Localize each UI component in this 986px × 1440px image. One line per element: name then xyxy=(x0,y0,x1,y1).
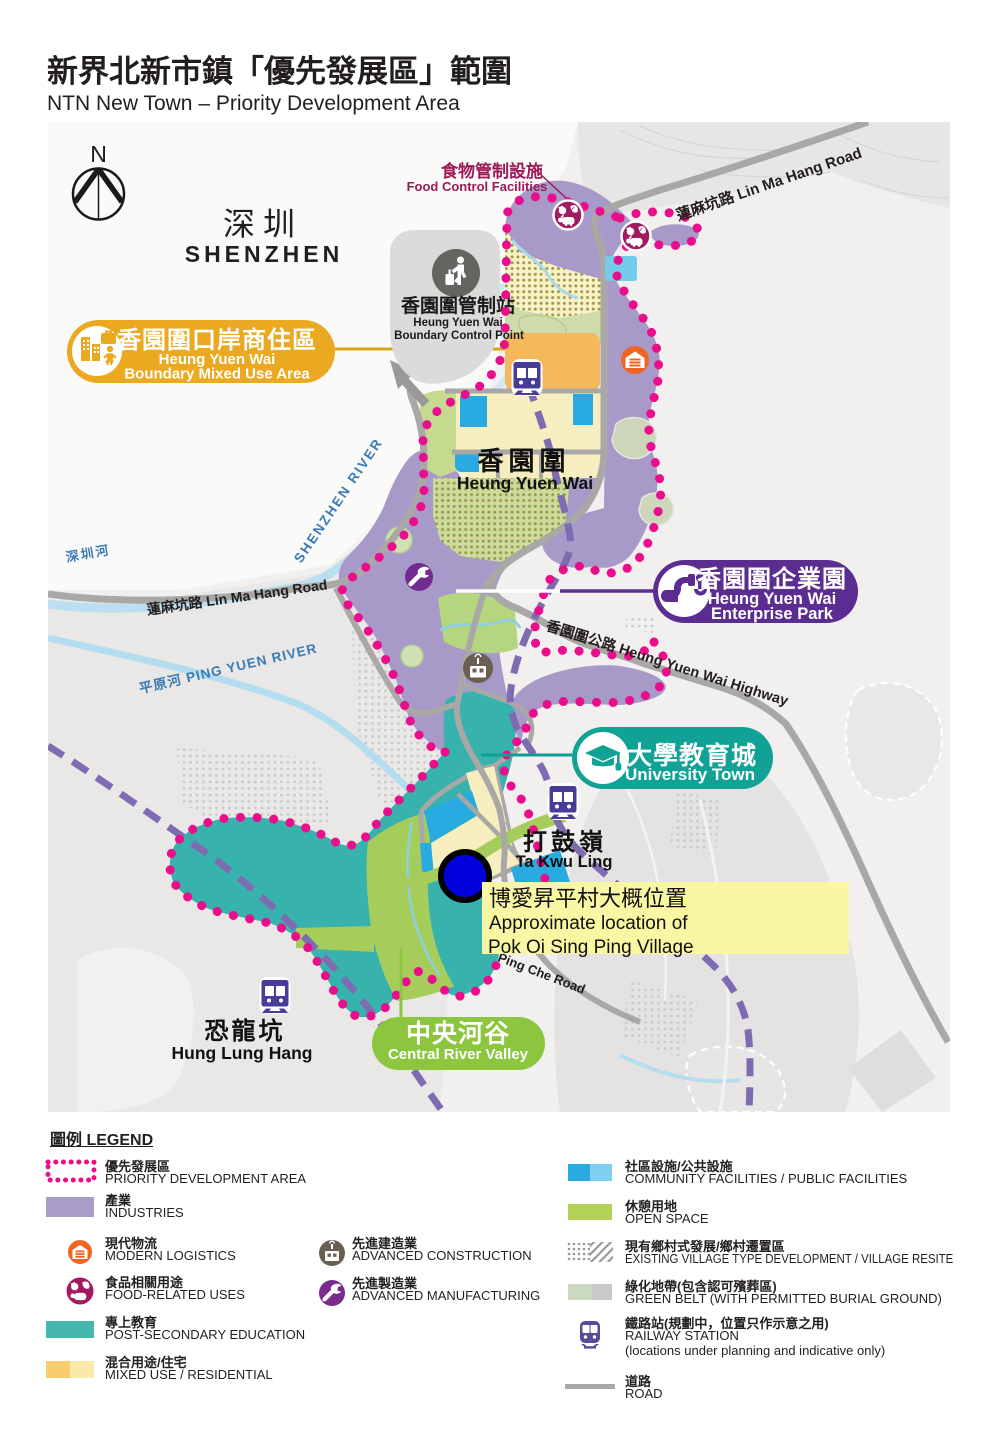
svg-text:香園圍企業園: 香園圍企業園 xyxy=(697,565,847,593)
svg-text:恐龍坑: 恐龍坑 xyxy=(205,1017,286,1045)
svg-text:香園圍: 香園圍 xyxy=(477,446,570,476)
svg-text:中央河谷: 中央河谷 xyxy=(406,1020,510,1048)
svg-text:食物管制設施: 食物管制設施 xyxy=(441,161,543,181)
svg-text:Ta Kwu Ling: Ta Kwu Ling xyxy=(516,853,613,871)
svg-text:Central River Valley: Central River Valley xyxy=(388,1046,529,1063)
svg-text:打鼓嶺: 打鼓嶺 xyxy=(523,828,607,856)
svg-text:博愛昇平村大概位置: 博愛昇平村大概位置 xyxy=(489,886,687,911)
svg-text:Boundary Mixed Use Area: Boundary Mixed Use Area xyxy=(124,366,310,383)
svg-text:University Town: University Town xyxy=(625,765,755,784)
svg-text:香園圍口岸商住區: 香園圍口岸商住區 xyxy=(117,326,317,354)
svg-text:Hung Lung Hang: Hung Lung Hang xyxy=(172,1043,313,1063)
svg-text:N: N xyxy=(90,141,107,167)
svg-text:香園圍管制站: 香園圍管制站 xyxy=(400,294,515,317)
svg-text:Heung Yuen Wai: Heung Yuen Wai xyxy=(413,317,502,329)
svg-text:SHENZHEN: SHENZHEN xyxy=(185,241,344,267)
svg-text:Food Control Facilities: Food Control Facilities xyxy=(407,179,548,194)
svg-text:Heung Yuen Wai: Heung Yuen Wai xyxy=(457,473,593,493)
svg-text:Pok Oi Sing Ping Village: Pok Oi Sing Ping Village xyxy=(488,937,694,958)
svg-text:深圳: 深圳 xyxy=(223,206,303,242)
svg-text:Enterprise Park: Enterprise Park xyxy=(711,605,834,623)
svg-text:Approximate location of: Approximate location of xyxy=(489,913,688,934)
